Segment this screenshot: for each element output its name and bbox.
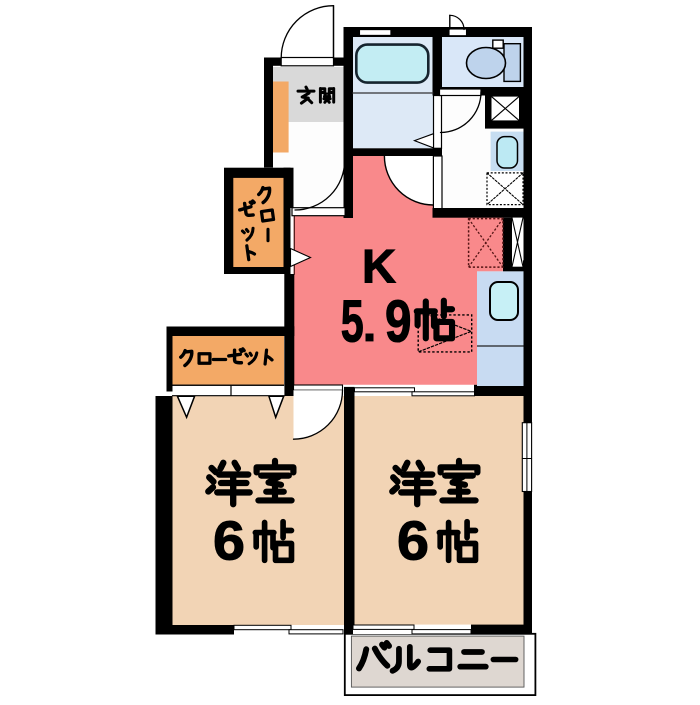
- svg-text:6: 6: [397, 509, 429, 571]
- svg-text:9: 9: [385, 288, 412, 354]
- svg-text:5: 5: [341, 288, 364, 354]
- svg-text:K: K: [362, 240, 396, 293]
- svg-text:6: 6: [213, 509, 245, 571]
